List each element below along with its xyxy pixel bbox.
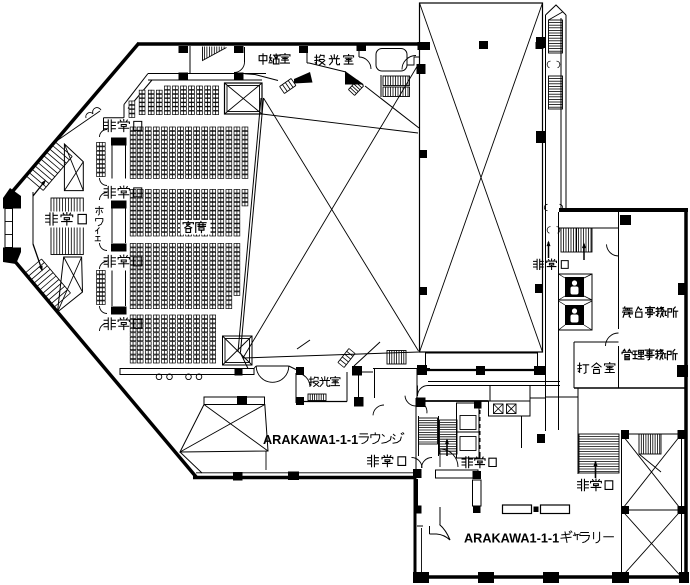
svg-text:ARAKAWA1-1-1: ARAKAWA1-1-1 [263, 433, 358, 447]
svg-text:ARAKAWA1-1-1: ARAKAWA1-1-1 [464, 532, 559, 546]
